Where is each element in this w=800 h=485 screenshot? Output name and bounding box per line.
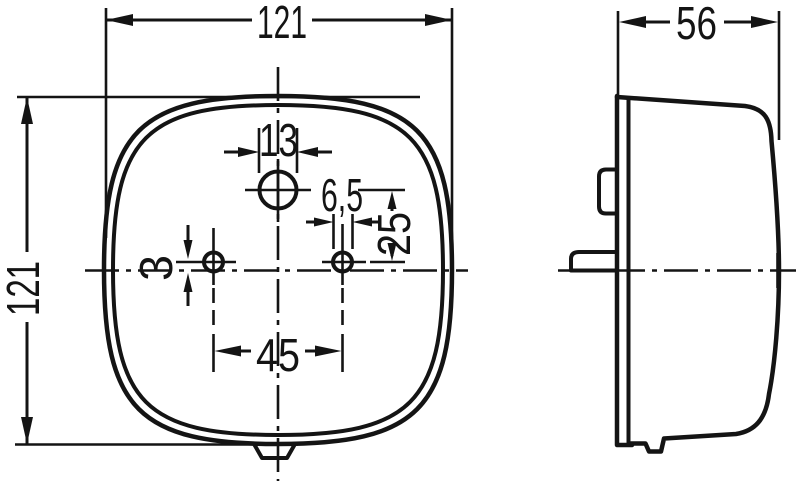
dim-hole-spacing-arrow-right	[315, 346, 342, 357]
dim-vertical-spacing-arrow-top	[388, 191, 397, 209]
dim-depth-arrow-left	[619, 16, 646, 28]
dim-depth-arrow-right	[751, 16, 778, 28]
side-body-outline	[617, 97, 779, 452]
dim-front-width-arrow-right	[425, 14, 452, 26]
technical-drawing: 121 121 13 6,5 25	[0, 0, 800, 485]
dim-offset: 3	[130, 225, 193, 306]
dim-vertical-spacing: 25	[358, 190, 420, 262]
dim-top-hole-label: 13	[259, 114, 298, 166]
dim-hole-spacing: 45	[214, 329, 343, 381]
dim-front-height-arrow-bottom	[21, 417, 33, 444]
dim-depth-label: 56	[676, 0, 717, 49]
dim-small-hole-label: 6,5	[321, 169, 363, 221]
dim-top-hole: 13	[224, 114, 332, 173]
dim-front-width-arrow-left	[106, 14, 133, 26]
drawing-canvas: 121 121 13 6,5 25	[0, 0, 800, 485]
dim-vertical-spacing-label: 25	[368, 212, 420, 256]
side-center-stud	[571, 252, 617, 271]
dim-front-height-label: 121	[0, 261, 49, 316]
dim-hole-spacing-label: 45	[256, 329, 300, 381]
dim-depth: 56	[618, 0, 779, 140]
dim-offset-arrow-up	[184, 273, 193, 292]
dim-top-hole-arrow-left	[238, 147, 259, 157]
dim-offset-label: 3	[130, 255, 182, 281]
dim-offset-arrow-down	[184, 240, 193, 259]
side-upper-tab	[599, 170, 617, 214]
dim-top-hole-arrow-right	[297, 147, 318, 157]
dim-hole-spacing-arrow-left	[215, 346, 242, 357]
side-view	[558, 96, 796, 452]
dim-front-width-label: 121	[257, 0, 307, 48]
dim-front-height-arrow-top	[21, 97, 33, 124]
